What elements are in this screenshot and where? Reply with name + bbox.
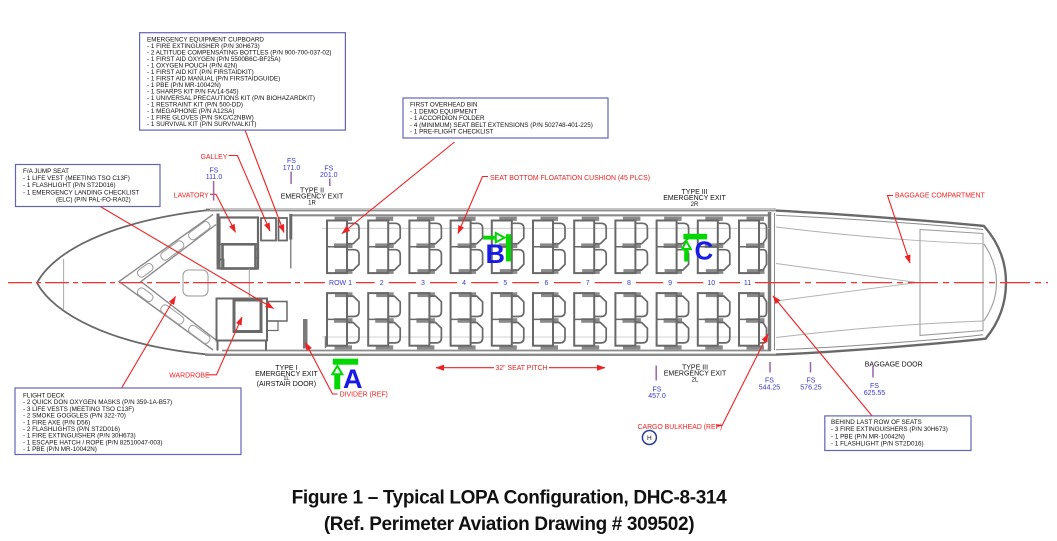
svg-text:Figure 1 – Typical LOPA Config: Figure 1 – Typical LOPA Configuration, D… (292, 487, 727, 508)
svg-text:BEHIND LAST ROW OF SEATS: BEHIND LAST ROW OF SEATS (831, 419, 922, 426)
svg-text:FS: FS (765, 378, 774, 385)
svg-text:FS: FS (870, 383, 879, 390)
svg-text:BAGGAGE DOOR: BAGGAGE DOOR (865, 362, 923, 369)
svg-text:FS: FS (807, 378, 816, 385)
svg-text:171.0: 171.0 (283, 165, 301, 172)
svg-text:- 1 EMERGENCY LANDING CHECKLIS: - 1 EMERGENCY LANDING CHECKLIST (23, 189, 140, 196)
svg-text:- 1 FLASHLIGHT (P/N ST2D016): - 1 FLASHLIGHT (P/N ST2D016) (831, 441, 924, 448)
svg-text:WARDROBE: WARDROBE (169, 373, 210, 380)
svg-text:- 1 PBE (P/N MR-10042N): - 1 PBE (P/N MR-10042N) (831, 433, 905, 440)
svg-text:6: 6 (545, 280, 549, 287)
svg-text:(Ref. Perimeter Aviation Drawi: (Ref. Perimeter Aviation Drawing # 30950… (324, 514, 694, 535)
svg-text:LAVATORY: LAVATORY (174, 193, 209, 200)
svg-text:9: 9 (668, 280, 672, 287)
svg-text:- 3 FIRE EXTINGUISHERS (P/N 30: - 3 FIRE EXTINGUISHERS (P/N 30H673) (831, 426, 948, 433)
svg-text:A: A (343, 364, 363, 394)
svg-text:BAGGAGE COMPARTMENT: BAGGAGE COMPARTMENT (895, 193, 986, 200)
svg-text:201.0: 201.0 (320, 172, 338, 179)
svg-text:- 1 SURVIVAL KIT (P/N SURVIVAL: - 1 SURVIVAL KIT (P/N SURVIVALKIT) (147, 121, 256, 128)
svg-text:2L: 2L (692, 377, 699, 383)
svg-text:B: B (486, 239, 506, 269)
svg-text:10: 10 (707, 280, 715, 287)
svg-text:576.25: 576.25 (800, 385, 822, 392)
svg-text:5: 5 (503, 280, 507, 287)
svg-text:4: 4 (462, 280, 466, 287)
svg-text:3: 3 (421, 280, 425, 287)
svg-text:(ELC) (P/N PAL-FO-RA02): (ELC) (P/N PAL-FO-RA02) (56, 197, 131, 204)
svg-text:2R: 2R (691, 202, 699, 208)
svg-text:ROW 1: ROW 1 (329, 280, 352, 287)
svg-text:EMERGENCY EXIT: EMERGENCY EXIT (663, 195, 726, 202)
svg-text:EMERGENCY EXIT: EMERGENCY EXIT (664, 370, 727, 377)
svg-text:- 1 FLASHLIGHT (P/N ST2D016): - 1 FLASHLIGHT (P/N ST2D016) (23, 182, 116, 189)
svg-text:2: 2 (380, 280, 384, 287)
svg-text:7: 7 (586, 280, 590, 287)
svg-text:H: H (647, 435, 652, 442)
svg-text:8: 8 (627, 280, 631, 287)
svg-text:544.25: 544.25 (759, 385, 781, 392)
svg-text:EMERGENCY EXIT: EMERGENCY EXIT (281, 193, 344, 200)
svg-text:F/A JUMP SEAT: F/A JUMP SEAT (23, 168, 69, 175)
svg-text:- 1 PBE (P/N MR-10042N): - 1 PBE (P/N MR-10042N) (23, 446, 97, 453)
svg-text:GALLEY: GALLEY (201, 154, 228, 161)
svg-text:SEAT BOTTOM FLOATATION CUSHION: SEAT BOTTOM FLOATATION CUSHION (45 PLCS) (490, 175, 650, 182)
svg-text:- 1 PRE-FLIGHT CHECKLIST: - 1 PRE-FLIGHT CHECKLIST (410, 129, 494, 136)
svg-text:1R: 1R (308, 201, 316, 207)
svg-text:11: 11 (744, 280, 751, 287)
svg-text:625.55: 625.55 (864, 390, 886, 397)
svg-text:- 1 LIFE VEST (MEETING TSO C13: - 1 LIFE VEST (MEETING TSO C13F) (23, 175, 130, 182)
svg-text:DIVIDER (REF): DIVIDER (REF) (340, 392, 388, 399)
svg-text:32" SEAT PITCH: 32" SEAT PITCH (496, 365, 548, 372)
svg-text:111.0: 111.0 (206, 174, 223, 181)
svg-text:(AIRSTAIR DOOR): (AIRSTAIR DOOR) (257, 381, 316, 388)
svg-text:457.0: 457.0 (648, 393, 666, 400)
svg-text:C: C (695, 236, 714, 266)
